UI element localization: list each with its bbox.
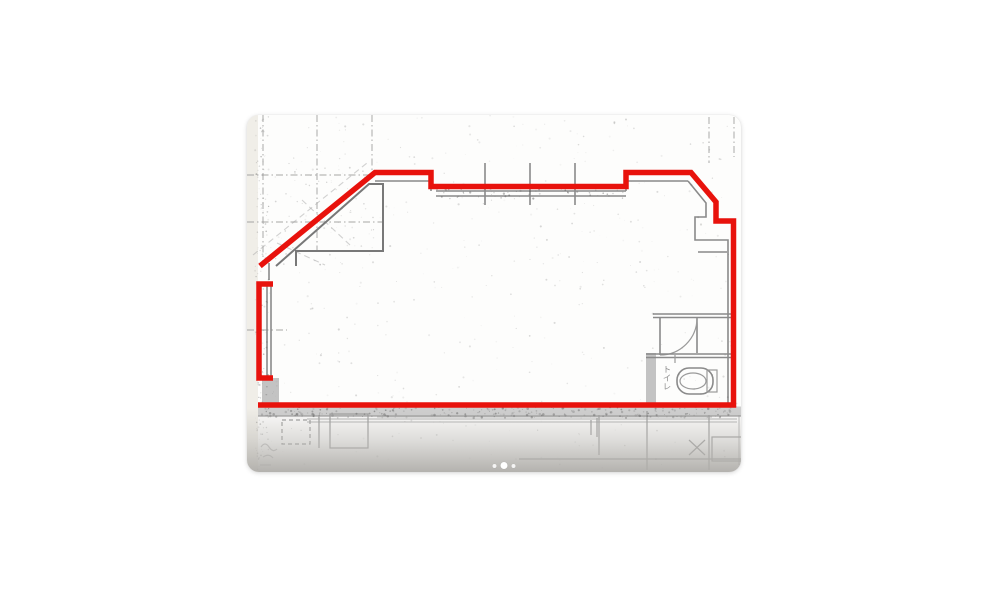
carousel-dot[interactable]: [501, 462, 508, 469]
viewer-canvas: トイレ: [0, 0, 1000, 600]
toilet-room: トイレ: [646, 314, 731, 405]
construction-diagonals: [253, 163, 367, 265]
carousel-dot[interactable]: [493, 464, 497, 468]
lower-plan-detail: [258, 407, 741, 471]
floorplan-slide[interactable]: トイレ: [247, 115, 741, 472]
toilet-label: トイレ: [661, 365, 671, 391]
floorplan-drawing: トイレ: [247, 115, 741, 472]
carousel-dot[interactable]: [512, 464, 516, 468]
door-swing-arc: [660, 318, 697, 355]
plan-walls: [262, 163, 728, 405]
grid-lines: [247, 115, 734, 330]
carousel-dots: [493, 462, 516, 469]
